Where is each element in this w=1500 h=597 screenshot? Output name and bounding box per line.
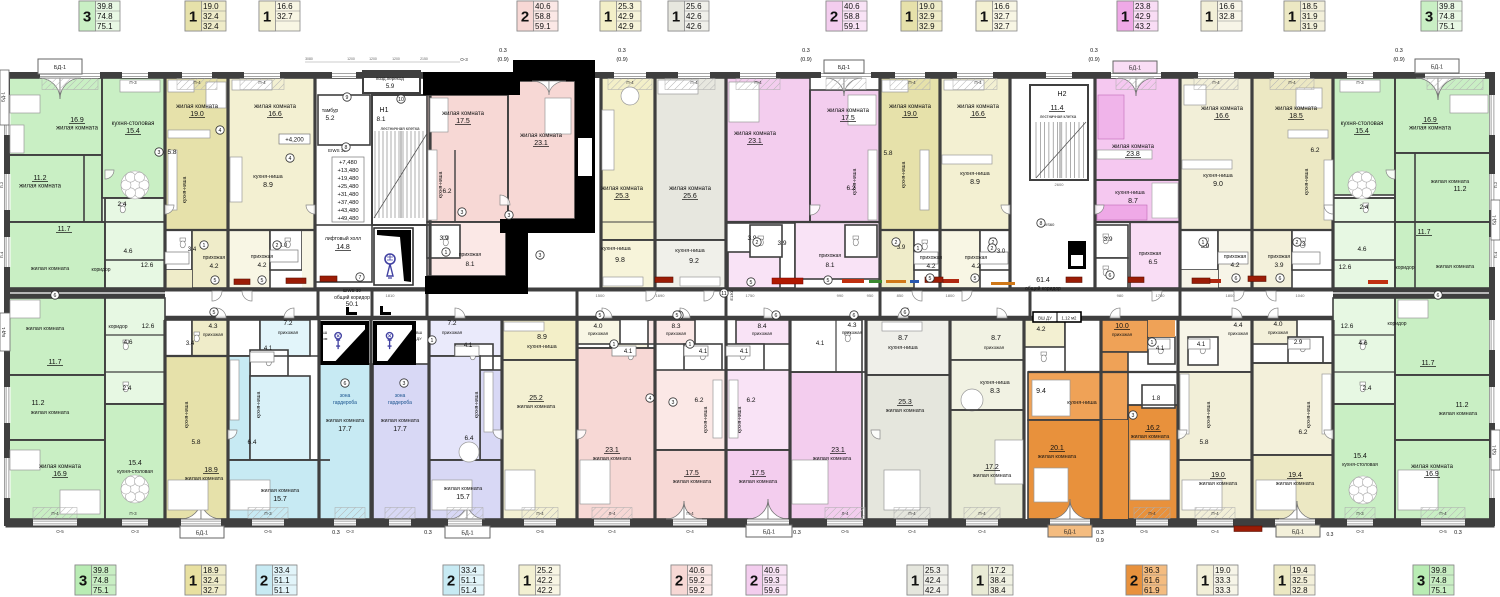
svg-text:2.9: 2.9 <box>1294 340 1303 346</box>
svg-text:жилая комната: жилая комната <box>593 456 632 462</box>
svg-text:прихожая: прихожая <box>819 253 842 259</box>
svg-text:4.1: 4.1 <box>1197 342 1206 348</box>
svg-text:6.4: 6.4 <box>247 439 256 446</box>
svg-text:П-4: П-4 <box>1148 511 1156 516</box>
svg-text:П-3: П-3 <box>264 511 272 516</box>
svg-text:8.1: 8.1 <box>465 261 474 268</box>
svg-text:4.6: 4.6 <box>1357 246 1366 253</box>
svg-text:жилая комната: жилая комната <box>185 476 224 482</box>
svg-text:8.9: 8.9 <box>970 179 980 186</box>
svg-text:3: 3 <box>403 381 406 387</box>
svg-text:19.4: 19.4 <box>1288 472 1302 479</box>
svg-text:1800: 1800 <box>946 293 956 298</box>
svg-text:жилая комната: жилая комната <box>739 479 778 485</box>
svg-text:8: 8 <box>345 145 348 151</box>
svg-text:1: 1 <box>672 9 680 26</box>
svg-text:1: 1 <box>523 573 531 590</box>
svg-text:18.5: 18.5 <box>1289 113 1303 120</box>
svg-text:7: 7 <box>359 275 362 281</box>
svg-text:прихожая: прихожая <box>1268 254 1291 260</box>
svg-text:кухня-ниша: кухня-ниша <box>980 380 1010 386</box>
svg-text:3.9: 3.9 <box>777 240 786 247</box>
svg-text:40.6: 40.6 <box>764 566 780 575</box>
svg-text:3: 3 <box>1417 573 1425 590</box>
svg-text:1: 1 <box>1151 340 1154 346</box>
svg-text:1: 1 <box>1202 240 1205 246</box>
svg-text:1: 1 <box>905 9 913 26</box>
svg-text:1.12 м2: 1.12 м2 <box>1062 316 1078 321</box>
svg-text:3: 3 <box>79 573 87 590</box>
svg-text:5: 5 <box>676 313 679 319</box>
svg-text:19.0: 19.0 <box>190 111 204 118</box>
svg-text:жилая комната: жилая комната <box>31 266 70 272</box>
svg-text:1: 1 <box>689 342 692 348</box>
svg-text:тамбур: тамбур <box>322 108 339 114</box>
svg-text:10.0: 10.0 <box>1115 323 1129 330</box>
svg-text:лестничная клетка: лестничная клетка <box>1040 114 1077 119</box>
svg-text:42.6: 42.6 <box>686 12 702 21</box>
svg-text:О-4: О-4 <box>1211 529 1219 534</box>
svg-text:40.6: 40.6 <box>689 566 705 575</box>
svg-text:прихожая: прихожая <box>1224 254 1247 260</box>
svg-text:3: 3 <box>158 150 161 156</box>
svg-text:32.8: 32.8 <box>1219 12 1235 21</box>
svg-text:4.1: 4.1 <box>264 346 273 352</box>
svg-text:прихожая: прихожая <box>459 252 482 258</box>
svg-text:коридор: коридор <box>108 324 127 330</box>
svg-text:0.3: 0.3 <box>793 530 801 536</box>
svg-text:61.6: 61.6 <box>1144 576 1160 585</box>
svg-text:0.3: 0.3 <box>1090 48 1098 54</box>
svg-text:20.1: 20.1 <box>1050 445 1064 452</box>
svg-text:1: 1 <box>604 9 612 26</box>
svg-text:1: 1 <box>980 9 988 26</box>
svg-text:18.5: 18.5 <box>1302 2 1318 11</box>
svg-text:23.1: 23.1 <box>748 138 762 145</box>
svg-text:58.8: 58.8 <box>535 12 551 21</box>
svg-text:9.4: 9.4 <box>1036 388 1046 395</box>
svg-text:6: 6 <box>1437 293 1440 299</box>
svg-text:жилая комната: жилая комната <box>261 488 300 494</box>
svg-text:32.4: 32.4 <box>203 576 219 585</box>
svg-text:кухня-ниша: кухня-ниша <box>1067 400 1097 406</box>
svg-text:О-3: О-3 <box>346 529 354 534</box>
svg-text:3: 3 <box>508 213 511 219</box>
svg-text:жилая комната: жилая комната <box>31 410 70 416</box>
svg-text:жилая комната: жилая комната <box>1276 481 1315 487</box>
svg-text:кухня-ниша: кухня-ниша <box>182 176 188 203</box>
svg-text:11.2: 11.2 <box>31 400 44 407</box>
svg-text:2.4: 2.4 <box>1359 204 1368 211</box>
svg-text:БД-1: БД-1 <box>1492 445 1497 455</box>
svg-text:жилая комната: жилая комната <box>1199 481 1238 487</box>
svg-text:9.2: 9.2 <box>689 258 699 265</box>
svg-text:16.9: 16.9 <box>70 117 84 124</box>
svg-text:25.2: 25.2 <box>529 395 543 402</box>
svg-text:15.4: 15.4 <box>128 460 142 467</box>
svg-text:лестничная клетка: лестничная клетка <box>380 126 420 131</box>
svg-text:О-5: О-5 <box>536 529 544 534</box>
svg-text:32.7: 32.7 <box>277 12 293 21</box>
svg-text:H2: H2 <box>1058 91 1067 98</box>
svg-text:38.4: 38.4 <box>990 586 1006 595</box>
svg-text:кухня-ниша: кухня-ниша <box>1206 401 1212 428</box>
svg-text:8.4: 8.4 <box>757 323 766 330</box>
svg-text:жилая комната: жилая комната <box>381 418 420 424</box>
svg-text:16.6: 16.6 <box>994 2 1010 11</box>
svg-text:33.3: 33.3 <box>1215 576 1231 585</box>
svg-text:32.9: 32.9 <box>919 22 935 31</box>
svg-text:О-3: О-3 <box>460 57 468 62</box>
svg-text:42.2: 42.2 <box>537 586 553 595</box>
svg-text:жилая комната: жилая комната <box>1411 464 1453 470</box>
svg-text:17.2: 17.2 <box>990 566 1006 575</box>
svg-text:жилая комната: жилая комната <box>19 184 61 190</box>
svg-text:коридор: коридор <box>91 267 110 273</box>
svg-text:4.1: 4.1 <box>624 349 633 355</box>
svg-text:25.6: 25.6 <box>683 193 697 200</box>
svg-text:39.8: 39.8 <box>93 566 109 575</box>
svg-text:П-4: П-4 <box>1439 511 1447 516</box>
svg-text:74.8: 74.8 <box>1431 576 1447 585</box>
svg-text:П-4: П-4 <box>686 511 694 516</box>
svg-text:5.8: 5.8 <box>191 439 200 446</box>
svg-text:жилая комната: жилая комната <box>1131 434 1170 440</box>
svg-text:2: 2 <box>276 243 279 249</box>
svg-text:1800: 1800 <box>1226 293 1236 298</box>
svg-text:4.6: 4.6 <box>1358 340 1367 347</box>
svg-text:25.3: 25.3 <box>898 399 912 406</box>
svg-text:10: 10 <box>398 97 404 103</box>
svg-text:(0.9): (0.9) <box>497 57 508 63</box>
svg-text:38.4: 38.4 <box>990 576 1006 585</box>
svg-text:42.9: 42.9 <box>618 22 634 31</box>
svg-text:61.9: 61.9 <box>1144 586 1160 595</box>
svg-text:0.3: 0.3 <box>1096 530 1104 536</box>
svg-text:жилая комната: жилая комната <box>254 104 296 110</box>
svg-text:БД-1: БД-1 <box>461 531 473 537</box>
svg-text:П-4: П-4 <box>1212 80 1220 85</box>
svg-text:5: 5 <box>827 278 830 284</box>
svg-text:5: 5 <box>599 313 602 319</box>
svg-text:6: 6 <box>54 293 57 299</box>
svg-text:17.5: 17.5 <box>685 470 699 477</box>
svg-text:11.7: 11.7 <box>1421 360 1434 367</box>
svg-text:+7,480: +7,480 <box>339 160 357 166</box>
svg-text:П-4: П-4 <box>754 80 762 85</box>
svg-text:5: 5 <box>974 276 977 282</box>
svg-text:возд.переход: возд.переход <box>376 76 404 81</box>
svg-text:11.7: 11.7 <box>57 226 70 233</box>
svg-text:О-4: О-4 <box>978 529 986 534</box>
svg-text:1500: 1500 <box>596 293 606 298</box>
svg-text:О-4: О-4 <box>608 529 616 534</box>
svg-text:17.5: 17.5 <box>751 470 765 477</box>
svg-text:1200: 1200 <box>347 57 355 61</box>
svg-text:2: 2 <box>260 573 268 590</box>
svg-text:8.7: 8.7 <box>898 335 908 342</box>
svg-text:П-2: П-2 <box>0 181 4 188</box>
svg-text:15.4: 15.4 <box>126 128 140 135</box>
svg-text:15.7: 15.7 <box>456 494 470 501</box>
svg-text:2: 2 <box>447 573 455 590</box>
svg-text:EIWS 30: EIWS 30 <box>343 288 361 293</box>
svg-text:1: 1 <box>203 243 206 249</box>
svg-text:11.7: 11.7 <box>48 359 61 366</box>
svg-text:1: 1 <box>189 573 197 590</box>
svg-text:прихожая: прихожая <box>965 255 988 261</box>
svg-text:59.6: 59.6 <box>764 586 780 595</box>
svg-text:4.2: 4.2 <box>209 263 218 270</box>
svg-text:8.7: 8.7 <box>991 335 1001 342</box>
svg-text:32.4: 32.4 <box>203 22 219 31</box>
svg-text:кухня-столовая: кухня-столовая <box>1341 121 1384 127</box>
svg-text:жилая комната: жилая комната <box>56 126 98 132</box>
svg-text:БД-1: БД-1 <box>196 531 208 537</box>
svg-text:О-5: О-5 <box>841 529 849 534</box>
svg-text:25.2: 25.2 <box>537 566 553 575</box>
svg-text:+25,480: +25,480 <box>337 184 358 190</box>
svg-text:прихожая: прихожая <box>1139 251 1162 257</box>
svg-text:4.1: 4.1 <box>1156 346 1165 352</box>
svg-text:19.0: 19.0 <box>203 2 219 11</box>
svg-text:6: 6 <box>1279 276 1282 282</box>
svg-text:58.8: 58.8 <box>844 12 860 21</box>
svg-text:980: 980 <box>1117 293 1124 298</box>
svg-text:кухня-ниша: кухня-ниша <box>184 401 190 428</box>
svg-text:+49,480: +49,480 <box>337 216 358 222</box>
svg-text:БД-1: БД-1 <box>54 65 66 71</box>
svg-text:Л-4: Л-4 <box>609 511 616 516</box>
svg-text:23.1: 23.1 <box>534 140 548 147</box>
svg-text:61.4: 61.4 <box>1036 277 1050 284</box>
svg-text:11.4: 11.4 <box>1050 105 1063 112</box>
svg-text:6: 6 <box>853 313 856 319</box>
svg-text:1040: 1040 <box>1296 293 1306 298</box>
svg-text:1750: 1750 <box>1156 293 1166 298</box>
svg-text:О-4: О-4 <box>908 529 916 534</box>
svg-text:2: 2 <box>895 240 898 246</box>
svg-text:43.2: 43.2 <box>1135 22 1151 31</box>
svg-text:25.6: 25.6 <box>686 2 702 11</box>
svg-text:1: 1 <box>917 246 920 252</box>
svg-text:жилая комната: жилая комната <box>827 108 869 114</box>
svg-text:общий коридор: общий коридор <box>1025 285 1061 292</box>
svg-text:59.3: 59.3 <box>764 576 780 585</box>
svg-text:(0.9): (0.9) <box>800 57 811 63</box>
svg-text:4.3: 4.3 <box>208 323 217 330</box>
svg-text:жилая комната: жилая комната <box>886 408 925 414</box>
svg-text:Е130: Е130 <box>729 291 734 301</box>
svg-text:1: 1 <box>1201 573 1209 590</box>
svg-text:11.2: 11.2 <box>33 175 46 182</box>
svg-text:16.6: 16.6 <box>1219 2 1235 11</box>
svg-text:12.6: 12.6 <box>1341 323 1354 330</box>
svg-text:жилая комната: жилая комната <box>1436 264 1475 270</box>
svg-text:1200: 1200 <box>369 57 377 61</box>
svg-text:0.3: 0.3 <box>802 48 810 54</box>
svg-text:2: 2 <box>750 573 758 590</box>
svg-text:Л-4: Л-4 <box>842 511 849 516</box>
svg-text:8.9: 8.9 <box>263 182 273 189</box>
svg-text:2: 2 <box>991 246 994 252</box>
svg-text:9.8: 9.8 <box>615 257 625 264</box>
svg-text:59.2: 59.2 <box>689 576 705 585</box>
svg-text:прихожая: прихожая <box>920 255 943 261</box>
svg-text:О-4: О-4 <box>686 529 694 534</box>
svg-text:6.2: 6.2 <box>1310 147 1319 154</box>
svg-text:9: 9 <box>346 95 349 101</box>
svg-text:25.3: 25.3 <box>618 2 634 11</box>
svg-text:прихожая: прихожая <box>1268 330 1289 335</box>
svg-text:4.1: 4.1 <box>464 343 473 349</box>
svg-text:жилая комната: жилая комната <box>442 111 484 117</box>
svg-text:прихожая: прихожая <box>1228 331 1249 336</box>
svg-text:39.8: 39.8 <box>1431 566 1447 575</box>
svg-text:кухня-ниша: кухня-ниша <box>1115 190 1145 196</box>
svg-text:П-4: П-4 <box>0 251 4 258</box>
svg-text:19.0: 19.0 <box>903 111 917 118</box>
svg-text:25.3: 25.3 <box>615 193 629 200</box>
svg-text:40.6: 40.6 <box>535 2 551 11</box>
svg-text:19.0: 19.0 <box>1211 472 1225 479</box>
svg-text:16.6: 16.6 <box>277 2 293 11</box>
svg-text:3: 3 <box>1425 9 1433 26</box>
svg-text:59.1: 59.1 <box>844 22 860 31</box>
svg-text:6.2: 6.2 <box>746 397 755 404</box>
svg-text:+31,480: +31,480 <box>337 192 358 198</box>
svg-text:23.1: 23.1 <box>831 447 845 454</box>
svg-text:прихожая: прихожая <box>984 345 1005 350</box>
svg-text:6: 6 <box>904 310 907 316</box>
svg-text:0.3: 0.3 <box>1327 532 1334 538</box>
svg-text:1750: 1750 <box>746 293 756 298</box>
svg-text:18.9: 18.9 <box>204 467 218 474</box>
svg-text:51.1: 51.1 <box>461 576 477 585</box>
svg-text:кухня-ниша: кухня-ниша <box>888 345 918 351</box>
svg-text:ВШ: ВШ <box>416 330 423 335</box>
svg-text:75.1: 75.1 <box>1431 586 1447 595</box>
svg-text:16.2: 16.2 <box>1146 425 1160 432</box>
svg-text:П-3: П-3 <box>1356 80 1364 85</box>
svg-text:31.9: 31.9 <box>1302 12 1318 21</box>
svg-text:6: 6 <box>1109 273 1112 279</box>
svg-text:2: 2 <box>1130 573 1138 590</box>
svg-text:32.9: 32.9 <box>919 12 935 21</box>
svg-text:32.7: 32.7 <box>994 12 1010 21</box>
svg-text:ВШ: ВШ <box>321 330 328 335</box>
svg-text:4.1: 4.1 <box>816 341 825 347</box>
svg-text:36.3: 36.3 <box>1144 566 1160 575</box>
svg-text:2.4: 2.4 <box>1362 385 1371 392</box>
svg-text:кухня-столовая: кухня-столовая <box>1342 462 1378 468</box>
svg-text:жилая комната: жилая комната <box>520 133 562 139</box>
svg-text:4.1: 4.1 <box>740 349 749 355</box>
svg-text:прихожая: прихожая <box>588 331 609 336</box>
svg-text:19.0: 19.0 <box>1215 566 1231 575</box>
svg-text:П-4: П-4 <box>690 80 698 85</box>
svg-text:кухня-ниша: кухня-ниша <box>901 161 907 188</box>
svg-text:БД-1: БД-1 <box>1492 215 1497 225</box>
svg-text:кухня-ниша: кухня-ниша <box>1304 168 1310 195</box>
svg-text:жилая комната: жилая комната <box>813 456 852 462</box>
svg-text:6.2: 6.2 <box>694 397 703 404</box>
svg-text:0.3: 0.3 <box>499 48 507 54</box>
svg-text:0.3: 0.3 <box>424 530 432 536</box>
svg-text:1: 1 <box>1121 9 1129 26</box>
svg-text:42.4: 42.4 <box>925 576 941 585</box>
svg-text:17.7: 17.7 <box>338 426 352 433</box>
svg-text:6.2: 6.2 <box>442 188 451 195</box>
svg-text:О-5: О-5 <box>56 529 64 534</box>
svg-text:42.2: 42.2 <box>537 576 553 585</box>
svg-text:51.4: 51.4 <box>461 586 477 595</box>
svg-text:5.8: 5.8 <box>1199 439 1208 446</box>
svg-text:4.3: 4.3 <box>847 322 856 329</box>
svg-text:850: 850 <box>897 293 904 298</box>
svg-text:жилая комната: жилая комната <box>601 186 643 192</box>
svg-text:зона: зона <box>340 393 351 399</box>
svg-text:П-4: П-4 <box>258 80 266 85</box>
svg-text:15.7: 15.7 <box>273 496 287 503</box>
svg-text:23.8: 23.8 <box>1135 2 1151 11</box>
svg-text:1: 1 <box>189 9 197 26</box>
svg-text:П-3: П-3 <box>129 80 137 85</box>
svg-text:51.1: 51.1 <box>274 576 290 585</box>
svg-text:40.6: 40.6 <box>844 2 860 11</box>
svg-text:75.1: 75.1 <box>93 586 109 595</box>
svg-text:74.8: 74.8 <box>97 12 113 21</box>
svg-text:П-4: П-4 <box>193 80 201 85</box>
svg-text:гардероба: гардероба <box>388 400 412 406</box>
svg-text:17.5: 17.5 <box>456 118 470 125</box>
svg-text:32.7: 32.7 <box>203 586 219 595</box>
svg-text:5: 5 <box>213 310 216 316</box>
svg-text:прихожая: прихожая <box>203 332 224 337</box>
svg-text:(0.9): (0.9) <box>1393 57 1404 63</box>
svg-text:кухня-столовая: кухня-столовая <box>117 469 153 475</box>
svg-text:8: 8 <box>1040 221 1043 227</box>
svg-text:коридор: коридор <box>1387 321 1406 327</box>
svg-text:жилая комната: жилая комната <box>889 104 931 110</box>
svg-text:+37,480: +37,480 <box>337 200 358 206</box>
svg-text:7.2: 7.2 <box>283 320 292 327</box>
svg-text:51.1: 51.1 <box>274 586 290 595</box>
svg-text:кухня-ниша: кухня-ниша <box>256 391 262 418</box>
svg-text:11.7: 11.7 <box>1417 229 1430 236</box>
svg-text:1810: 1810 <box>386 293 396 298</box>
svg-text:75.1: 75.1 <box>97 22 113 31</box>
svg-text:12.6: 12.6 <box>142 323 155 330</box>
svg-text:2150: 2150 <box>420 57 428 61</box>
svg-text:4.2: 4.2 <box>1230 262 1239 269</box>
svg-text:4.0: 4.0 <box>1273 321 1282 328</box>
svg-text:16.9: 16.9 <box>1423 117 1437 124</box>
svg-text:прихожая: прихожая <box>1112 332 1133 337</box>
svg-text:1: 1 <box>445 250 448 256</box>
svg-text:16.6: 16.6 <box>268 111 282 118</box>
svg-text:1: 1 <box>1205 9 1213 26</box>
svg-text:11: 11 <box>721 291 726 297</box>
svg-text:О-5: О-5 <box>1439 529 1447 534</box>
svg-text:0.3: 0.3 <box>1395 48 1403 54</box>
svg-text:жилая комната: жилая комната <box>176 104 218 110</box>
svg-text:25.3: 25.3 <box>925 566 941 575</box>
svg-text:БД-1: БД-1 <box>1064 530 1076 536</box>
svg-text:50.1: 50.1 <box>346 301 359 308</box>
svg-text:2600: 2600 <box>1055 182 1065 187</box>
svg-text:6.4: 6.4 <box>464 435 473 442</box>
